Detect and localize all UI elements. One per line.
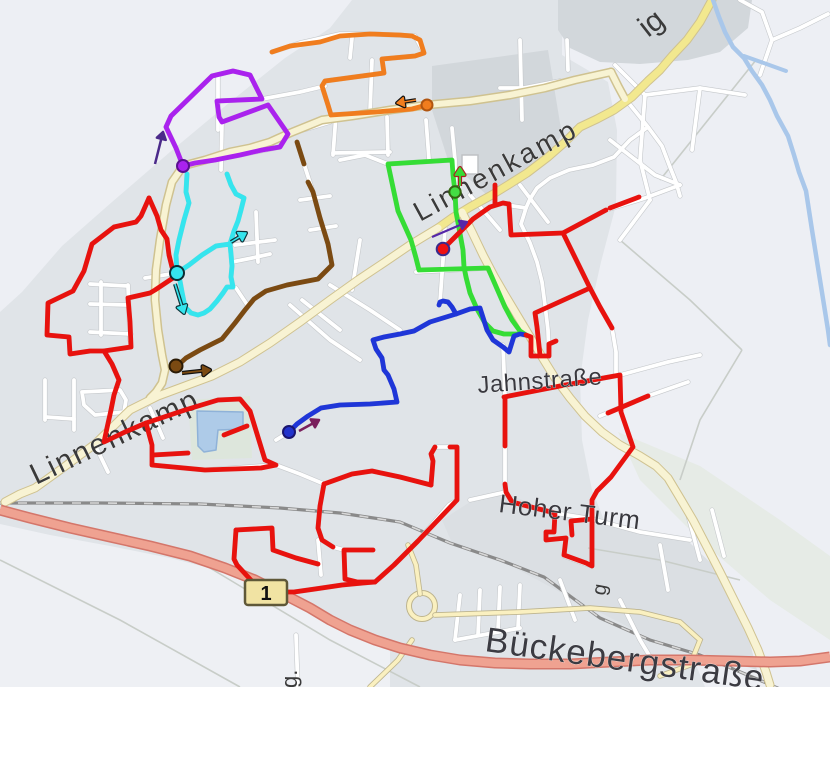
svg-text:1: 1 (260, 583, 271, 605)
svg-text:g.: g. (277, 670, 302, 688)
